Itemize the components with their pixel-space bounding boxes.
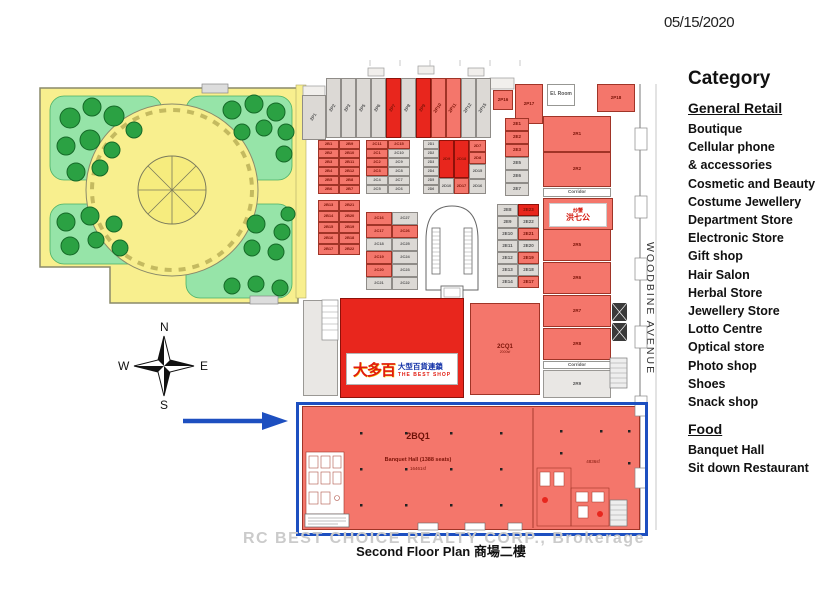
unit-2b1: 2B1 [318,140,339,149]
unit-2c24: 2C24 [392,251,418,264]
unit-2d7: 2D7 [469,140,486,152]
best-shop-sub-cn: 大型百貨連鎖 [398,361,443,372]
unit-2c3: 2C3 [366,167,388,176]
best-shop-sub-en: THE BEST SHOP [398,372,451,378]
unit-2c7: 2C7 [388,176,410,185]
unit-2p9: 2P9 [416,78,431,138]
legend-item: Jewellery Store [688,302,820,320]
unit-2b16: 2B16 [318,233,339,244]
unit-2b10: 2B10 [339,149,360,158]
unit-2p10: 2P10 [431,78,446,138]
unit-2b2: 2B2 [318,149,339,158]
legend-item: Sit down Restaurant [688,459,820,477]
unit-2d8: 2D8 [469,152,486,164]
unit-2d18: 2D18 [454,140,469,178]
unit-2r7: 2R7 [543,295,611,327]
unit-blank [303,300,338,396]
legend-item: Electronic Store [688,229,820,247]
unit-2c19: 2C19 [366,251,392,264]
unit-2d1: 2D1 [423,140,439,149]
compass-e: E [200,359,208,373]
unit-2e7: 2E7 [505,183,529,196]
unit-2e21: 2E21 [518,228,539,240]
banquet-area-right: 4836sf [563,459,623,464]
floor-plan-page: 2P12P22P32P52P62P72P82P92P102P112P122P15… [0,0,823,600]
unit-2b6: 2B6 [318,185,339,194]
unit-2b22: 2B22 [339,244,360,255]
unit-2e20: 2E20 [518,240,539,252]
unit-2e8: 2E8 [497,204,518,216]
unit-2e17: 2E17 [518,276,539,288]
unit-2d6: 2D6 [423,185,439,194]
unit-2c22: 2C22 [392,277,418,290]
unit-2e3: 2E3 [505,144,529,157]
banquet-area: 16461sf [343,466,493,471]
unit-2d17: 2D17 [454,178,469,194]
unit-restaurant-logo: 炒蟹 洪七公 [543,198,613,230]
unit-2p2: 2P2 [326,78,341,138]
unit-2c5: 2C5 [366,185,388,194]
legend-item: Lotto Centre [688,320,820,338]
unit-2e14: 2E14 [497,276,518,288]
unit-2c18: 2C18 [366,238,392,251]
unit-2p15: 2P15 [476,78,491,138]
unit-2b12: 2B12 [339,167,360,176]
unit-2c21: 2C21 [366,277,392,290]
unit-2e9: 2E9 [497,216,518,228]
date-label: 05/15/2020 [664,14,734,31]
unit-2p7: 2P7 [386,78,401,138]
unit-2e13: 2E13 [497,264,518,276]
best-shop-logo-cn: 大多百 [353,359,395,380]
restaurant-sign: 炒蟹 洪七公 [549,203,607,227]
unit-2c6: 2C6 [388,185,410,194]
unit-2c2: 2C2 [366,158,388,167]
unit-2r6: 2R6 [543,262,611,294]
unit-2b8: 2B8 [339,176,360,185]
legend-item: Costume Jewellery [688,193,820,211]
unit-2d15: 2D15 [469,164,486,179]
unit-2e18: 2E18 [518,264,539,276]
unit-2c17: 2C17 [366,225,392,238]
unit-2e2: 2E2 [505,131,529,144]
unit-2e5: 2E5 [505,157,529,170]
unit-2b7: 2B7 [339,185,360,194]
unit-2e10: 2E10 [497,228,518,240]
unit-2r2: 2R2 [543,152,611,187]
unit-2p1: 2P1 [302,95,326,140]
unit-2b17: 2B17 [318,244,339,255]
street-label: WOODBINE AVENUE [644,242,656,402]
unit-2r5: 2R5 [543,229,611,261]
unit-2c1: 2C1 [366,149,388,158]
unit-2p12: 2P12 [461,78,476,138]
legend-item: Department Store [688,211,820,229]
unit-2c23: 2C23 [392,264,418,277]
unit-2b15: 2B15 [318,222,339,233]
legend-title: Category [688,68,820,90]
plan-title: Second Floor Plan 商場二樓 [296,541,586,560]
banquet-label: 2BQ1 [373,431,463,441]
legend-item: Herbal Store [688,284,820,302]
unit-2d9: 2D9 [439,140,454,178]
legend-item: Gift shop [688,247,820,265]
unit-2e19: 2E19 [518,252,539,264]
unit-corridor: Corridor [543,188,611,197]
unit-2r8: 2R8 [543,328,611,360]
unit-2b5: 2B5 [318,176,339,185]
best-shop-banner: 大多百 大型百貨連鎖 THE BEST SHOP [346,353,458,385]
compass-n: N [160,320,169,334]
unit-2c25: 2C25 [392,238,418,251]
legend: Category General RetailBoutiqueCellular … [688,68,820,478]
unit-2p11: 2P11 [446,78,461,138]
legend-item: Cellular phone [688,138,820,156]
unit-2d16: 2D16 [469,179,486,194]
legend-item: & accessories [688,156,820,174]
legend-item: Photo shop [688,357,820,375]
legend-heading: General Retail [688,100,820,116]
unit-2d10: 2D10 [439,178,454,194]
unit-2d4: 2D4 [423,167,439,176]
unit-2b11: 2B11 [339,158,360,167]
unit-2c20: 2C20 [366,264,392,277]
unit-el-room: El. Room [547,84,575,106]
unit-corridor: Corridor [543,361,611,369]
unit-2b3: 2B3 [318,158,339,167]
unit-2c10: 2C10 [388,149,410,158]
legend-item: Shoes [688,375,820,393]
unit-2e6: 2E6 [505,170,529,183]
legend-item: Cosmetic and Beauty [688,175,820,193]
unit-2p16: 2P16 [493,90,513,110]
unit-2p18: 2P18 [597,84,635,112]
compass-w: W [118,359,129,373]
unit-2r1: 2R1 [543,116,611,152]
legend-item: Boutique [688,120,820,138]
unit-2c11: 2C11 [366,140,388,149]
unit-2p3: 2P3 [341,78,356,138]
legend-sections: General RetailBoutiqueCellular phone& ac… [688,100,820,478]
unit-2c8: 2C8 [388,167,410,176]
unit-2bq1-banquet-hall: 2BQ1 Banquet Hall (1388 seats) 16461sf 4… [302,406,640,530]
unit-2e1: 2E1 [505,118,529,131]
banquet-desc: Banquet Hall (1388 seats) [343,457,493,463]
legend-item: Hair Salon [688,266,820,284]
unit-2e22: 2E22 [518,216,539,228]
legend-heading: Food [688,421,820,437]
unit-2cq1: 2CQ12000sf [470,303,540,395]
unit-2c16: 2C16 [366,212,392,225]
unit-2c26: 2C26 [392,225,418,238]
unit-2b14: 2B14 [318,211,339,222]
unit-2b19: 2B19 [339,222,360,233]
unit-2b20: 2B20 [339,211,360,222]
unit-2d5: 2D5 [423,176,439,185]
unit-2e11: 2E11 [497,240,518,252]
unit-best-shop: 大多百 大型百貨連鎖 THE BEST SHOP [340,298,464,398]
unit-2p5: 2P5 [356,78,371,138]
unit-2e12: 2E12 [497,252,518,264]
legend-item: Banquet Hall [688,441,820,459]
unit-2r9: 2R9 [543,370,611,398]
compass-s: S [160,398,168,412]
unit-2e23: 2E23 [518,204,539,216]
unit-2d3: 2D3 [423,158,439,167]
unit-2c15: 2C15 [388,140,410,149]
legend-item: Optical store [688,338,820,356]
unit-2d2: 2D2 [423,149,439,158]
restaurant-line2: 洪七公 [566,214,590,222]
unit-2b21: 2B21 [339,200,360,211]
unit-2p6: 2P6 [371,78,386,138]
unit-2c4: 2C4 [366,176,388,185]
unit-2b9: 2B9 [339,140,360,149]
unit-2b13: 2B13 [318,200,339,211]
unit-2p8: 2P8 [401,78,416,138]
unit-2c9: 2C9 [388,158,410,167]
unit-2b18: 2B18 [339,233,360,244]
unit-2b4: 2B4 [318,167,339,176]
unit-2c27: 2C27 [392,212,418,225]
legend-item: Snack shop [688,393,820,411]
